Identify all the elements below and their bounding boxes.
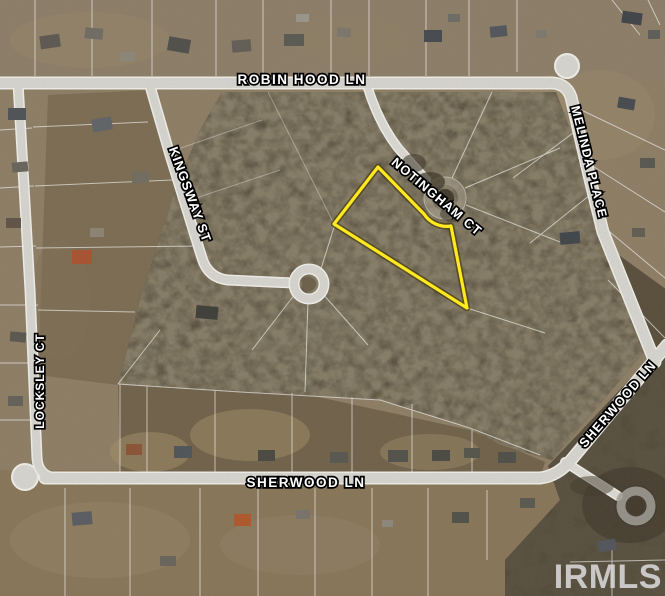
photo-grain (0, 0, 665, 596)
street-label-locksley-ct: LOCKSLEY CT (33, 333, 47, 428)
map-canvas: ROBIN HOOD LN KINGSWAY ST NOTINGHAM CT M… (0, 0, 665, 596)
street-label-sherwood-ln: SHERWOOD LN (246, 475, 365, 490)
irmls-watermark: IRMLS (554, 558, 662, 596)
aerial-parcel-map[interactable]: ROBIN HOOD LN KINGSWAY ST NOTINGHAM CT M… (0, 0, 665, 596)
street-label-robin-hood-ln: ROBIN HOOD LN (238, 72, 367, 87)
